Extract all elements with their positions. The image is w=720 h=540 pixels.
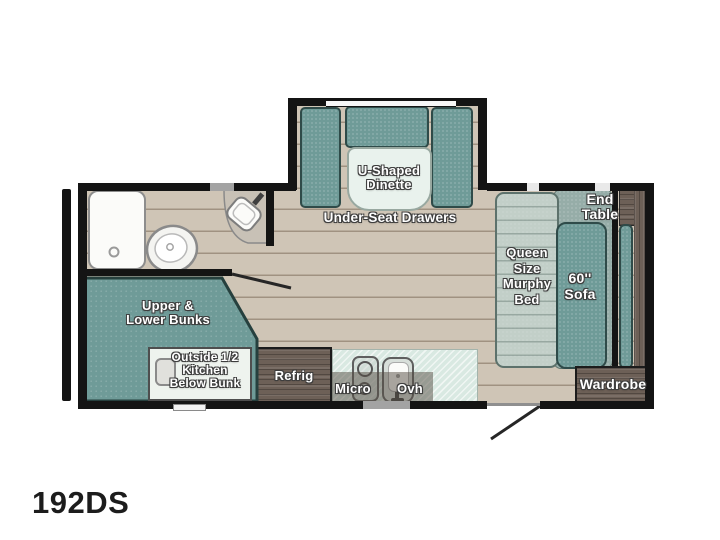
bathroom-door-swing (232, 274, 291, 288)
top-wall-segment (539, 183, 595, 191)
outside-kitchen-hatch (173, 404, 206, 411)
left-exterior-wall (78, 183, 87, 408)
slideout-right-wall (478, 98, 487, 190)
shower-drain-icon (110, 248, 119, 257)
bunks-label: Upper & Lower Bunks (103, 299, 233, 327)
window (210, 183, 234, 191)
top-wall-segment (234, 183, 296, 191)
bottom-wall-segment (540, 401, 654, 409)
window (363, 401, 410, 409)
sofa-label: 60'' Sofa (551, 270, 609, 302)
bathroom-wall (86, 269, 232, 276)
bottom-wall-segment (410, 401, 487, 409)
end-table-label: End Table (556, 192, 644, 221)
floorplan-canvas: U-Shaped Dinette Under-Seat Drawers Quee… (0, 0, 720, 540)
top-wall-segment (610, 183, 654, 191)
slideout-window (326, 100, 456, 107)
under-seat-drawers-label: Under-Seat Drawers (298, 211, 482, 225)
bathroom-wall-stub (266, 188, 274, 246)
rear-bumper (62, 189, 71, 401)
entry-door-swing (491, 406, 540, 439)
slideout-left-wall (288, 98, 297, 190)
microwave-label: Micro (325, 382, 381, 396)
top-wall-segment (487, 183, 527, 191)
model-number: 192DS (32, 485, 129, 521)
refrigerator-label: Refrig (256, 369, 332, 383)
right-exterior-wall (645, 183, 654, 408)
top-wall-segment (78, 183, 210, 191)
window (595, 183, 610, 191)
bottom-wall-segment (78, 401, 363, 409)
outside-kitchen-label: Outside 1/2 Kitchen Below Bunk (146, 351, 264, 390)
wardrobe-label: Wardrobe (575, 377, 651, 391)
window (527, 183, 539, 191)
dinette-label: U-Shaped Dinette (339, 164, 439, 192)
overhead-label: Ovh (388, 382, 432, 396)
entry-door-threshold (487, 403, 540, 406)
bathroom-corner-sink (224, 190, 267, 243)
